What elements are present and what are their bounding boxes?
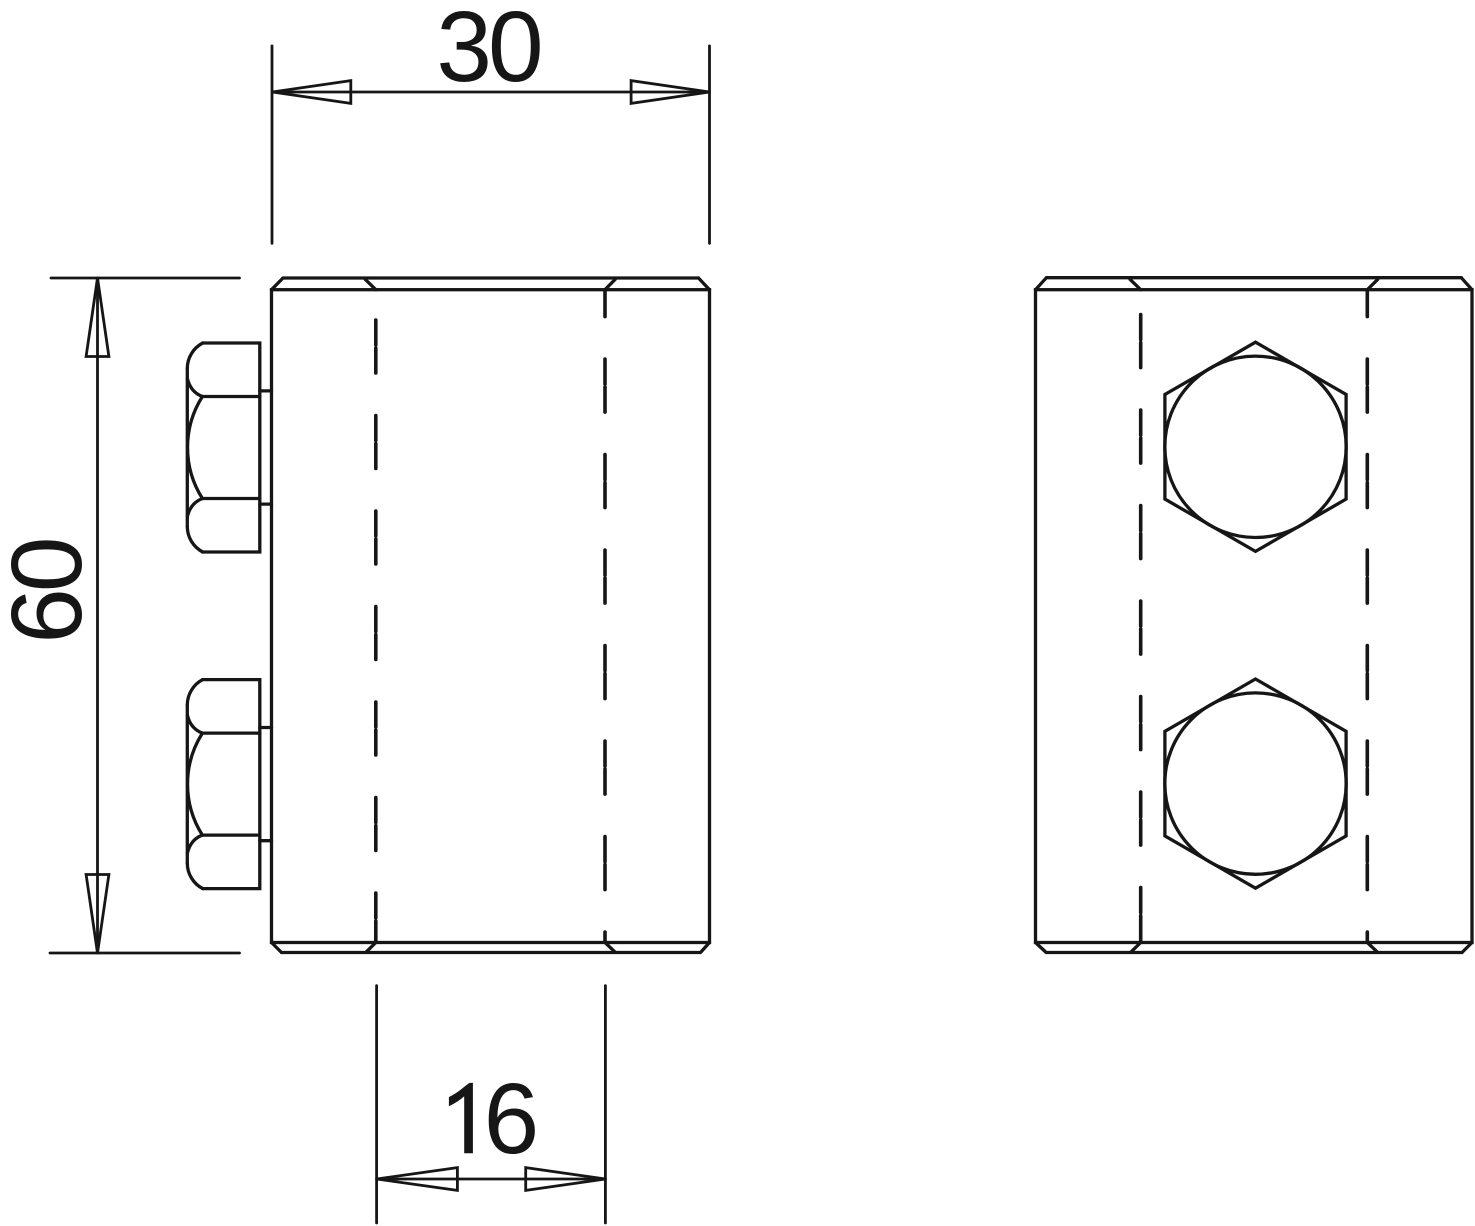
svg-text:6: 6	[484, 1063, 540, 1175]
svg-text:60: 60	[0, 540, 103, 644]
svg-text:30: 30	[436, 0, 540, 103]
